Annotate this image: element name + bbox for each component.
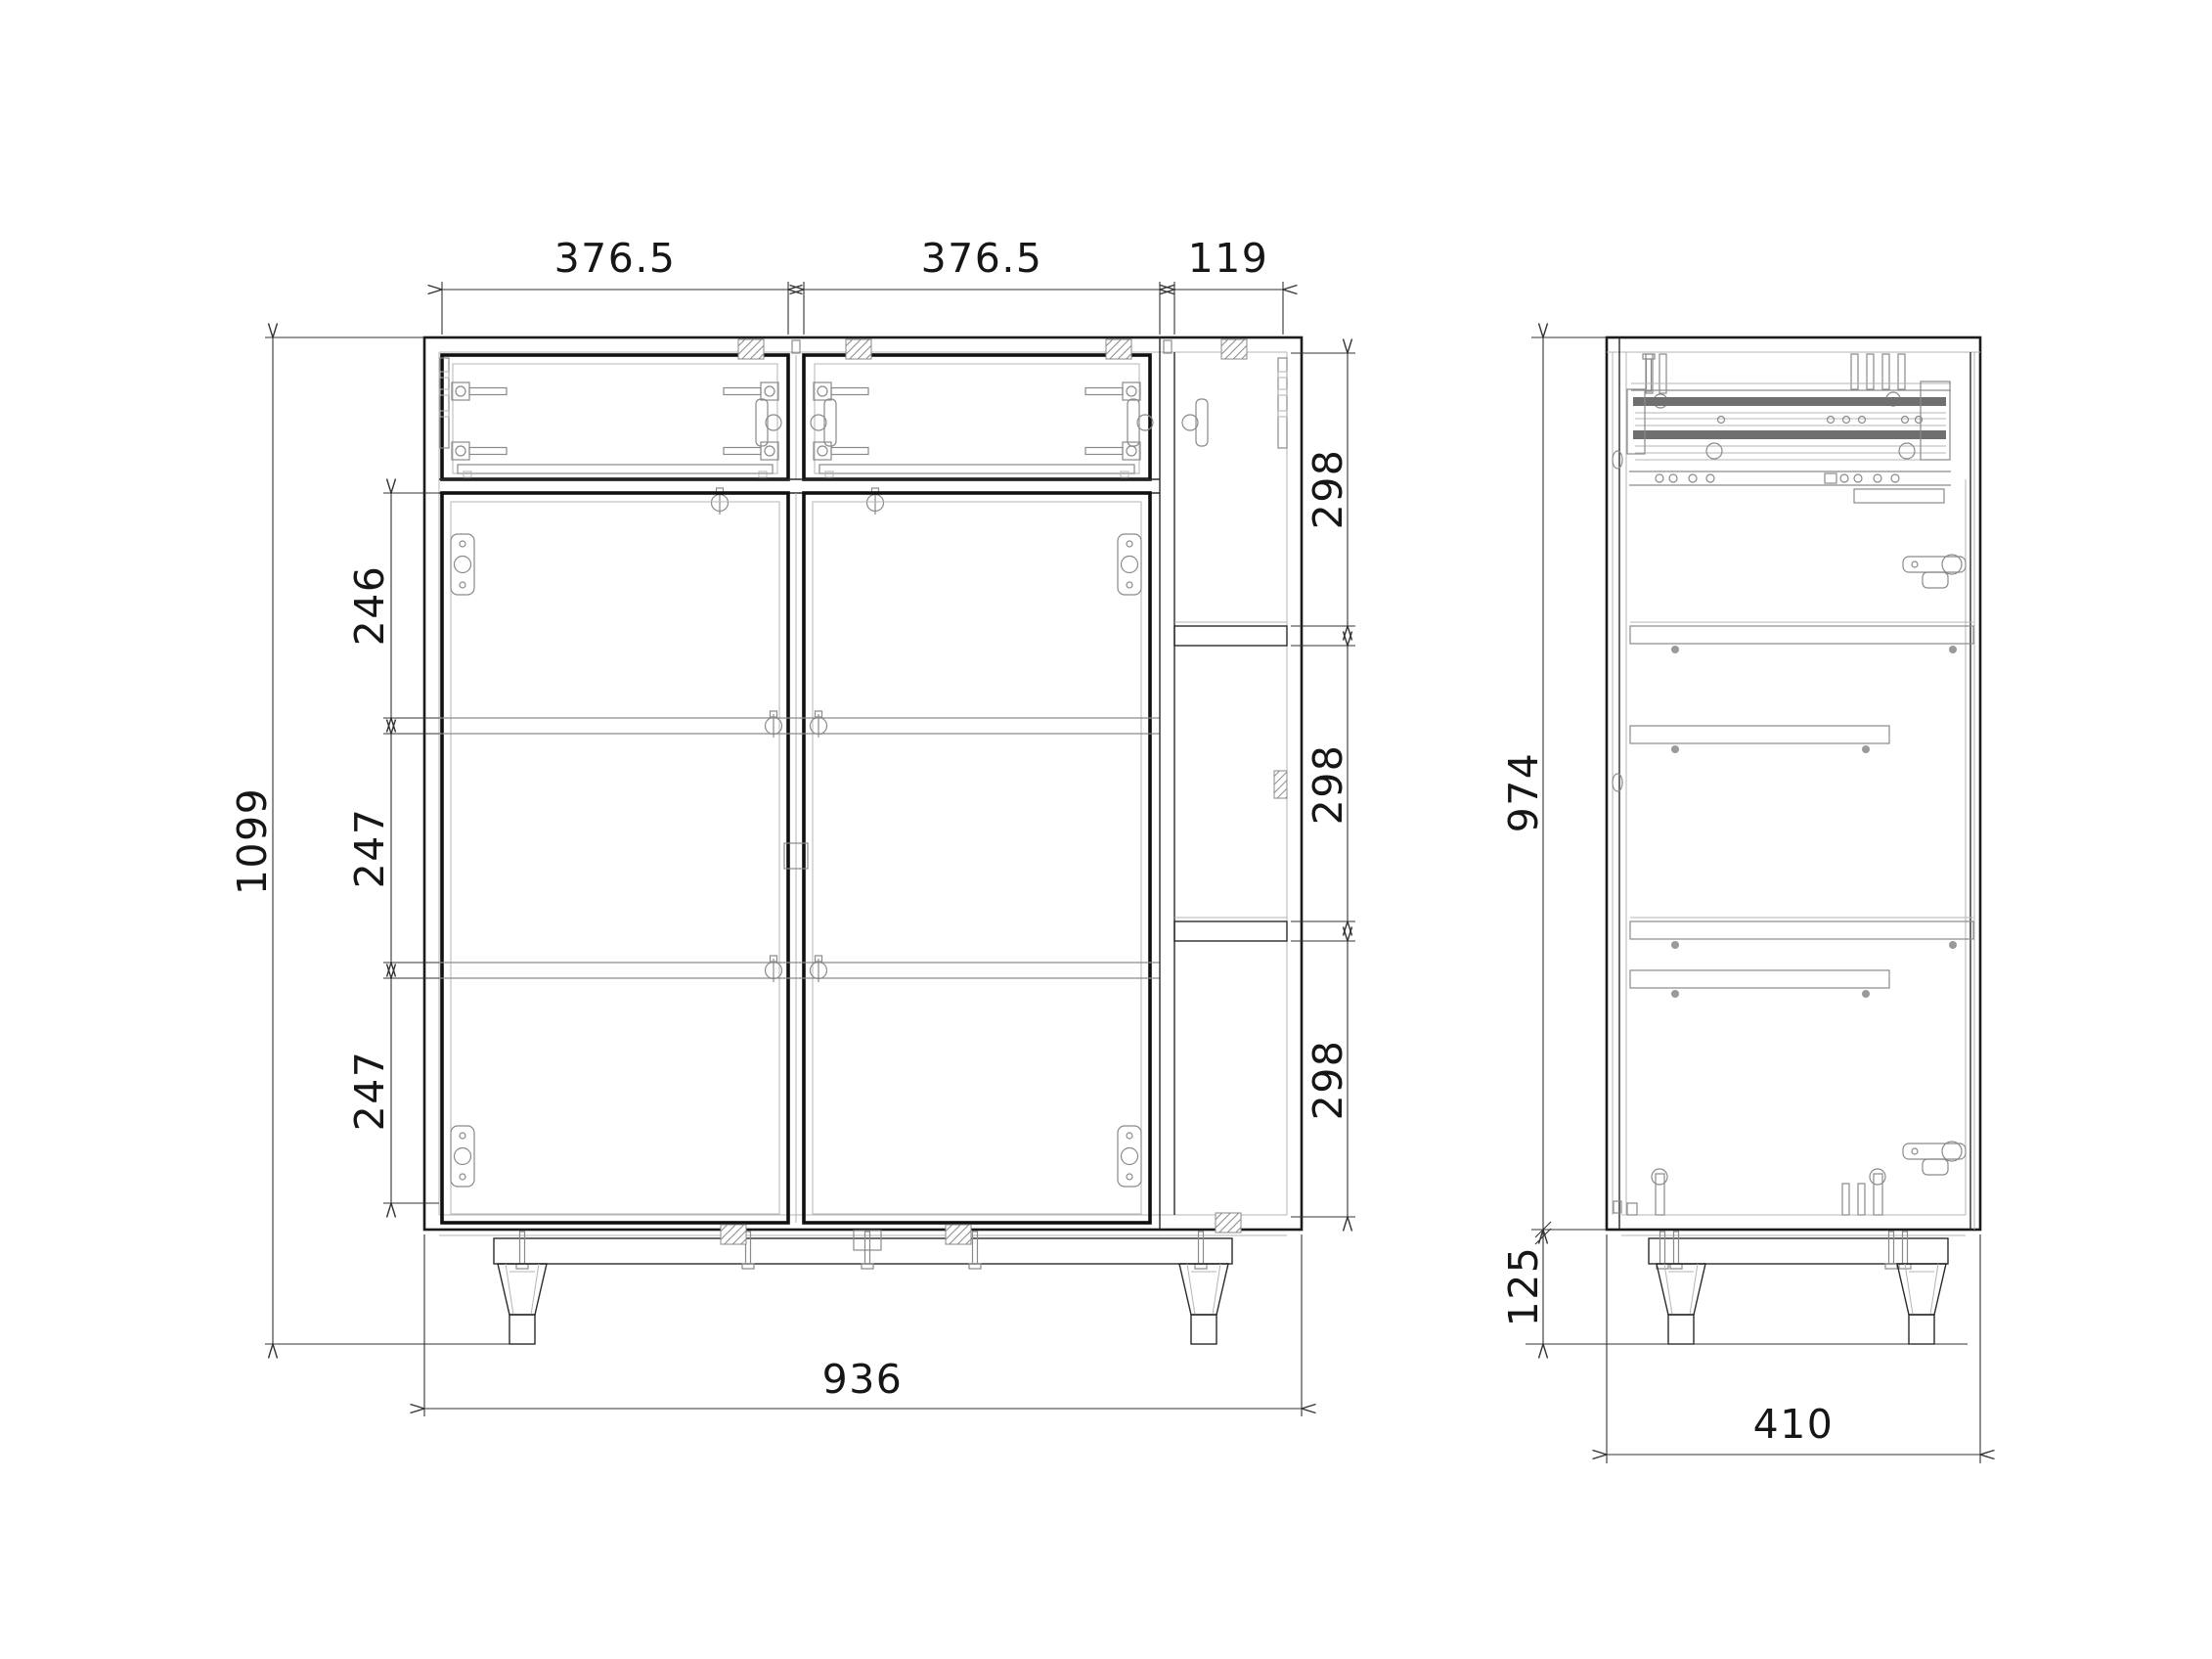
dim-overall-width: 936 xyxy=(822,1356,904,1403)
drawer-right xyxy=(804,355,1150,479)
side-leg-front xyxy=(1897,1264,1946,1344)
side-hinge-top xyxy=(1903,555,1966,588)
front-carcass xyxy=(424,337,1302,1230)
front-leg-left xyxy=(498,1264,547,1344)
dim-compartment-middle: 298 xyxy=(1305,744,1351,826)
dim-drawer-width-right: 376.5 xyxy=(921,235,1043,282)
corner-bracket-right xyxy=(1278,358,1287,448)
front-doors xyxy=(439,493,1160,1223)
front-view: 376.5 376.5 119 1099 246 247 247 298 xyxy=(229,235,1355,1416)
dim-front-overall-width: 936 xyxy=(424,1234,1302,1416)
side-drawer-rail xyxy=(1629,471,1951,503)
side-shelves xyxy=(1630,622,1973,998)
dim-compartment-top: 298 xyxy=(1305,449,1351,530)
door-left xyxy=(442,493,788,1223)
dim-side-leg-height: 125 xyxy=(1500,1222,1551,1344)
side-leg-back xyxy=(1657,1264,1705,1344)
door-right xyxy=(804,493,1150,1223)
dim-front-shelf-gaps: 246 247 247 xyxy=(346,493,440,1203)
front-leg-right xyxy=(1179,1264,1228,1344)
dim-front-top: 376.5 376.5 119 xyxy=(442,235,1283,335)
dim-gap-bottom: 247 xyxy=(346,1051,393,1132)
dim-depth: 410 xyxy=(1753,1401,1835,1448)
dim-gap-middle: 247 xyxy=(346,808,393,889)
dim-carcass-height: 974 xyxy=(1500,752,1547,833)
dim-drawer-width-left: 376.5 xyxy=(554,235,677,282)
dim-leg-height: 125 xyxy=(1500,1246,1547,1327)
dim-overall-height: 1099 xyxy=(229,787,276,895)
side-bottom-hardware xyxy=(1627,1169,1885,1215)
drawer-left xyxy=(442,355,788,479)
side-view: 974 125 410 xyxy=(1500,337,1980,1463)
drawing-svg: 376.5 376.5 119 1099 246 247 247 298 xyxy=(0,0,2212,1659)
front-right-column xyxy=(1160,337,1287,1233)
dim-compartment-bottom: 298 xyxy=(1305,1040,1351,1121)
dim-gap-top: 246 xyxy=(346,565,393,647)
dim-side-carcass-height: 974 xyxy=(1500,337,1607,1230)
front-base xyxy=(439,1225,1287,1344)
side-hinge-bottom xyxy=(1903,1142,1966,1175)
cabinet-technical-drawing: 376.5 376.5 119 1099 246 247 247 298 xyxy=(0,0,2212,1659)
side-drawer-slides xyxy=(1627,354,1951,460)
side-base xyxy=(1526,1232,1968,1344)
dim-right-column-width: 119 xyxy=(1188,235,1269,282)
